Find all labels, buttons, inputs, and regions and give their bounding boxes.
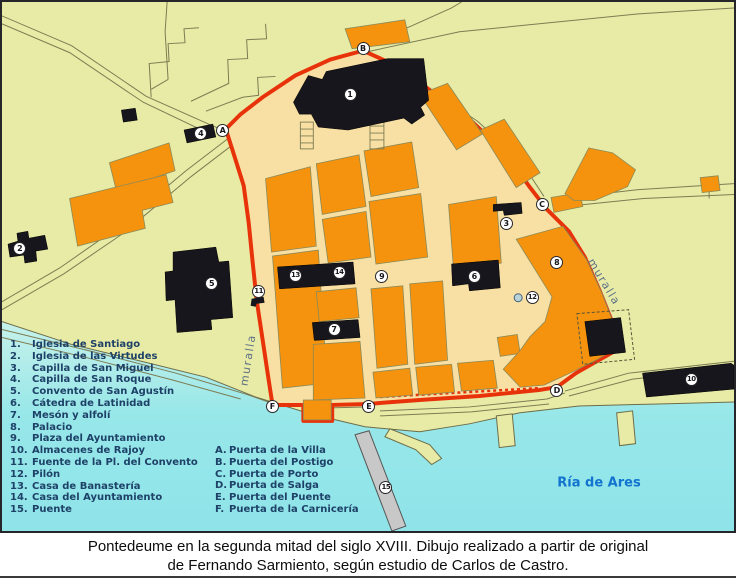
map-marker-6: 6: [468, 270, 481, 283]
legend-item-label: Mesón y alfolí: [32, 410, 110, 422]
legend-item: 15.Puente: [10, 504, 198, 516]
legend-item-number: 8.: [10, 422, 32, 434]
map-marker-3: 3: [500, 217, 513, 230]
muralla-label-left: muralla: [237, 333, 258, 387]
legend-item-number: 13.: [10, 481, 32, 493]
legend-item: 9.Plaza del Ayuntamiento: [10, 433, 198, 445]
map-marker-B: B: [357, 42, 370, 55]
map-marker-10: 10: [685, 373, 698, 386]
legend-item-number: 10.: [10, 445, 32, 457]
water-name-label: Ría de Ares: [557, 476, 640, 491]
legend-item: D.Puerta de Salga: [215, 480, 359, 492]
legend-item-label: Convento de San Agustín: [32, 386, 174, 398]
caption-line-2: de Fernando Sarmiento, según estudio de …: [0, 556, 736, 575]
map-overlay: muralla muralla Ría de Ares 123456789101…: [2, 2, 734, 531]
legend-item-label: Capilla de San Miguel: [32, 363, 154, 375]
legend-item-number: 9.: [10, 433, 32, 445]
legend-item-number: E.: [215, 492, 229, 504]
legend-item-number: 15.: [10, 504, 32, 516]
legend-item-number: 7.: [10, 410, 32, 422]
legend-item: C.Puerta de Porto: [215, 469, 359, 481]
legend-item-number: 3.: [10, 363, 32, 375]
legend-item-label: Puerta de Salga: [229, 480, 319, 492]
legend-item-label: Palacio: [32, 422, 72, 434]
legend-item: 10.Almacenes de Rajoy: [10, 445, 198, 457]
legend-item-number: 14.: [10, 492, 32, 504]
map-marker-13: 13: [289, 269, 302, 282]
legend-item-label: Casa de Banastería: [32, 481, 141, 493]
legend-item: E.Puerta del Puente: [215, 492, 359, 504]
legend-item-number: D.: [215, 480, 229, 492]
legend-item-number: B.: [215, 457, 229, 469]
legend-item: 13.Casa de Banastería: [10, 481, 198, 493]
map-marker-A: A: [216, 124, 229, 137]
legend-item: 11.Fuente de la Pl. del Convento: [10, 457, 198, 469]
legend-item-label: Fuente de la Pl. del Convento: [32, 457, 198, 469]
legend-item: 4.Capilla de San Roque: [10, 374, 198, 386]
legend-item-label: Puerta de la Carnicería: [229, 504, 359, 516]
map-frame: muralla muralla Ría de Ares 123456789101…: [0, 0, 736, 533]
map-marker-9: 9: [375, 270, 388, 283]
muralla-label-right: muralla: [585, 256, 623, 308]
legend-item-label: Puerta de Porto: [229, 469, 318, 481]
legend-item-number: 5.: [10, 386, 32, 398]
legend-item: 6.Cátedra de Latinidad: [10, 398, 198, 410]
map-marker-5: 5: [205, 277, 218, 290]
legend-item-number: A.: [215, 445, 229, 457]
legend-lettered-list: A.Puerta de la VillaB.Puerta del Postigo…: [215, 445, 359, 516]
legend-item-number: 12.: [10, 469, 32, 481]
legend-item: A.Puerta de la Villa: [215, 445, 359, 457]
caption-line-1: Pontedeume en la segunda mitad del siglo…: [0, 537, 736, 556]
legend-item-label: Pilón: [32, 469, 60, 481]
legend-item: B.Puerta del Postigo: [215, 457, 359, 469]
legend-item: 5.Convento de San Agustín: [10, 386, 198, 398]
map-marker-12: 12: [526, 291, 539, 304]
pontedeume-historic-map-page: muralla muralla Ría de Ares 123456789101…: [0, 0, 736, 578]
legend-item-label: Plaza del Ayuntamiento: [32, 433, 165, 445]
map-caption: Pontedeume en la segunda mitad del siglo…: [0, 537, 736, 575]
legend-item-label: Capilla de San Roque: [32, 374, 151, 386]
legend-item-number: 2.: [10, 351, 32, 363]
legend-item-number: 11.: [10, 457, 32, 469]
map-marker-2: 2: [13, 242, 26, 255]
legend-item-label: Puerta de la Villa: [229, 445, 326, 457]
legend-item-label: Puerta del Puente: [229, 492, 331, 504]
legend-item-label: Cátedra de Latinidad: [32, 398, 150, 410]
legend-item: 8.Palacio: [10, 422, 198, 434]
map-marker-7: 7: [328, 323, 341, 336]
map-marker-14: 14: [333, 266, 346, 279]
map-marker-11: 11: [252, 285, 265, 298]
legend-item: F.Puerta de la Carnicería: [215, 504, 359, 516]
legend-item-number: C.: [215, 469, 229, 481]
legend-item-number: 6.: [10, 398, 32, 410]
map-marker-D: D: [550, 384, 563, 397]
map-marker-8: 8: [550, 256, 563, 269]
legend-item-number: 1.: [10, 339, 32, 351]
legend-item-number: F.: [215, 504, 229, 516]
legend-item: 2.Iglesia de las Virtudes: [10, 351, 198, 363]
legend-numbered-list: 1.Iglesia de Santiago2.Iglesia de las Vi…: [10, 339, 198, 516]
legend-item-label: Almacenes de Rajoy: [32, 445, 145, 457]
map-marker-15: 15: [379, 481, 392, 494]
map-marker-E: E: [362, 400, 375, 413]
legend-item: 1.Iglesia de Santiago: [10, 339, 198, 351]
map-marker-F: F: [266, 400, 279, 413]
legend-item: 12.Pilón: [10, 469, 198, 481]
legend-item-label: Iglesia de Santiago: [32, 339, 140, 351]
map-marker-C: C: [536, 198, 549, 211]
legend-item: 14.Casa del Ayuntamiento: [10, 492, 198, 504]
legend-item-label: Puente: [32, 504, 72, 516]
legend-item-number: 4.: [10, 374, 32, 386]
map-marker-4: 4: [194, 127, 207, 140]
legend-item: 3.Capilla de San Miguel: [10, 363, 198, 375]
legend-item-label: Puerta del Postigo: [229, 457, 333, 469]
legend-item: 7.Mesón y alfolí: [10, 410, 198, 422]
map-marker-1: 1: [344, 88, 357, 101]
legend-item-label: Casa del Ayuntamiento: [32, 492, 162, 504]
legend-item-label: Iglesia de las Virtudes: [32, 351, 157, 363]
